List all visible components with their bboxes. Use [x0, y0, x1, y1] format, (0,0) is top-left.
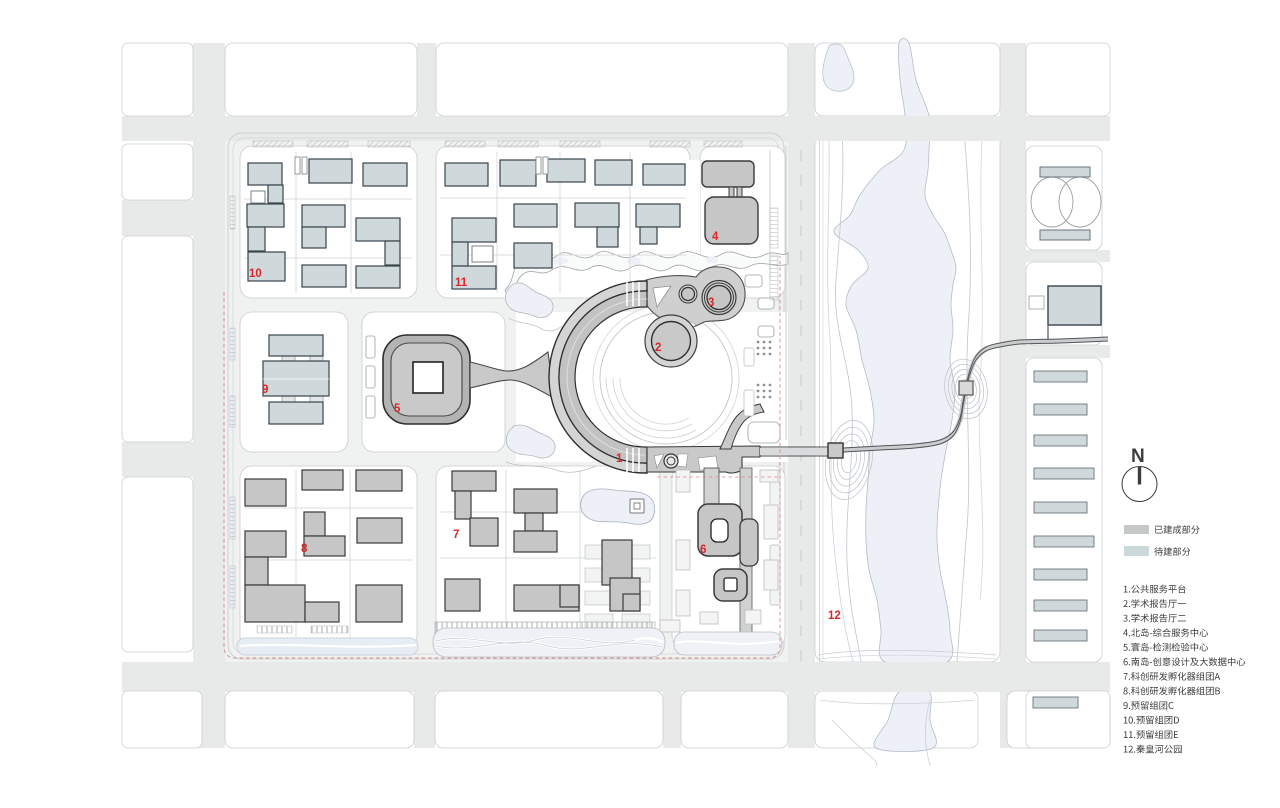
svg-text:10: 10	[249, 268, 262, 280]
svg-text:9: 9	[262, 384, 268, 396]
svg-text:1: 1	[616, 453, 623, 465]
svg-text:11: 11	[455, 277, 468, 289]
svg-text:3: 3	[708, 297, 714, 309]
svg-text:6: 6	[700, 544, 706, 556]
svg-text:12: 12	[828, 610, 841, 622]
svg-text:N: N	[1131, 446, 1145, 467]
svg-text:5: 5	[394, 403, 401, 415]
svg-text:7: 7	[453, 529, 459, 541]
svg-text:8: 8	[301, 543, 308, 555]
svg-text:4: 4	[712, 231, 719, 243]
svg-text:2: 2	[655, 342, 661, 354]
